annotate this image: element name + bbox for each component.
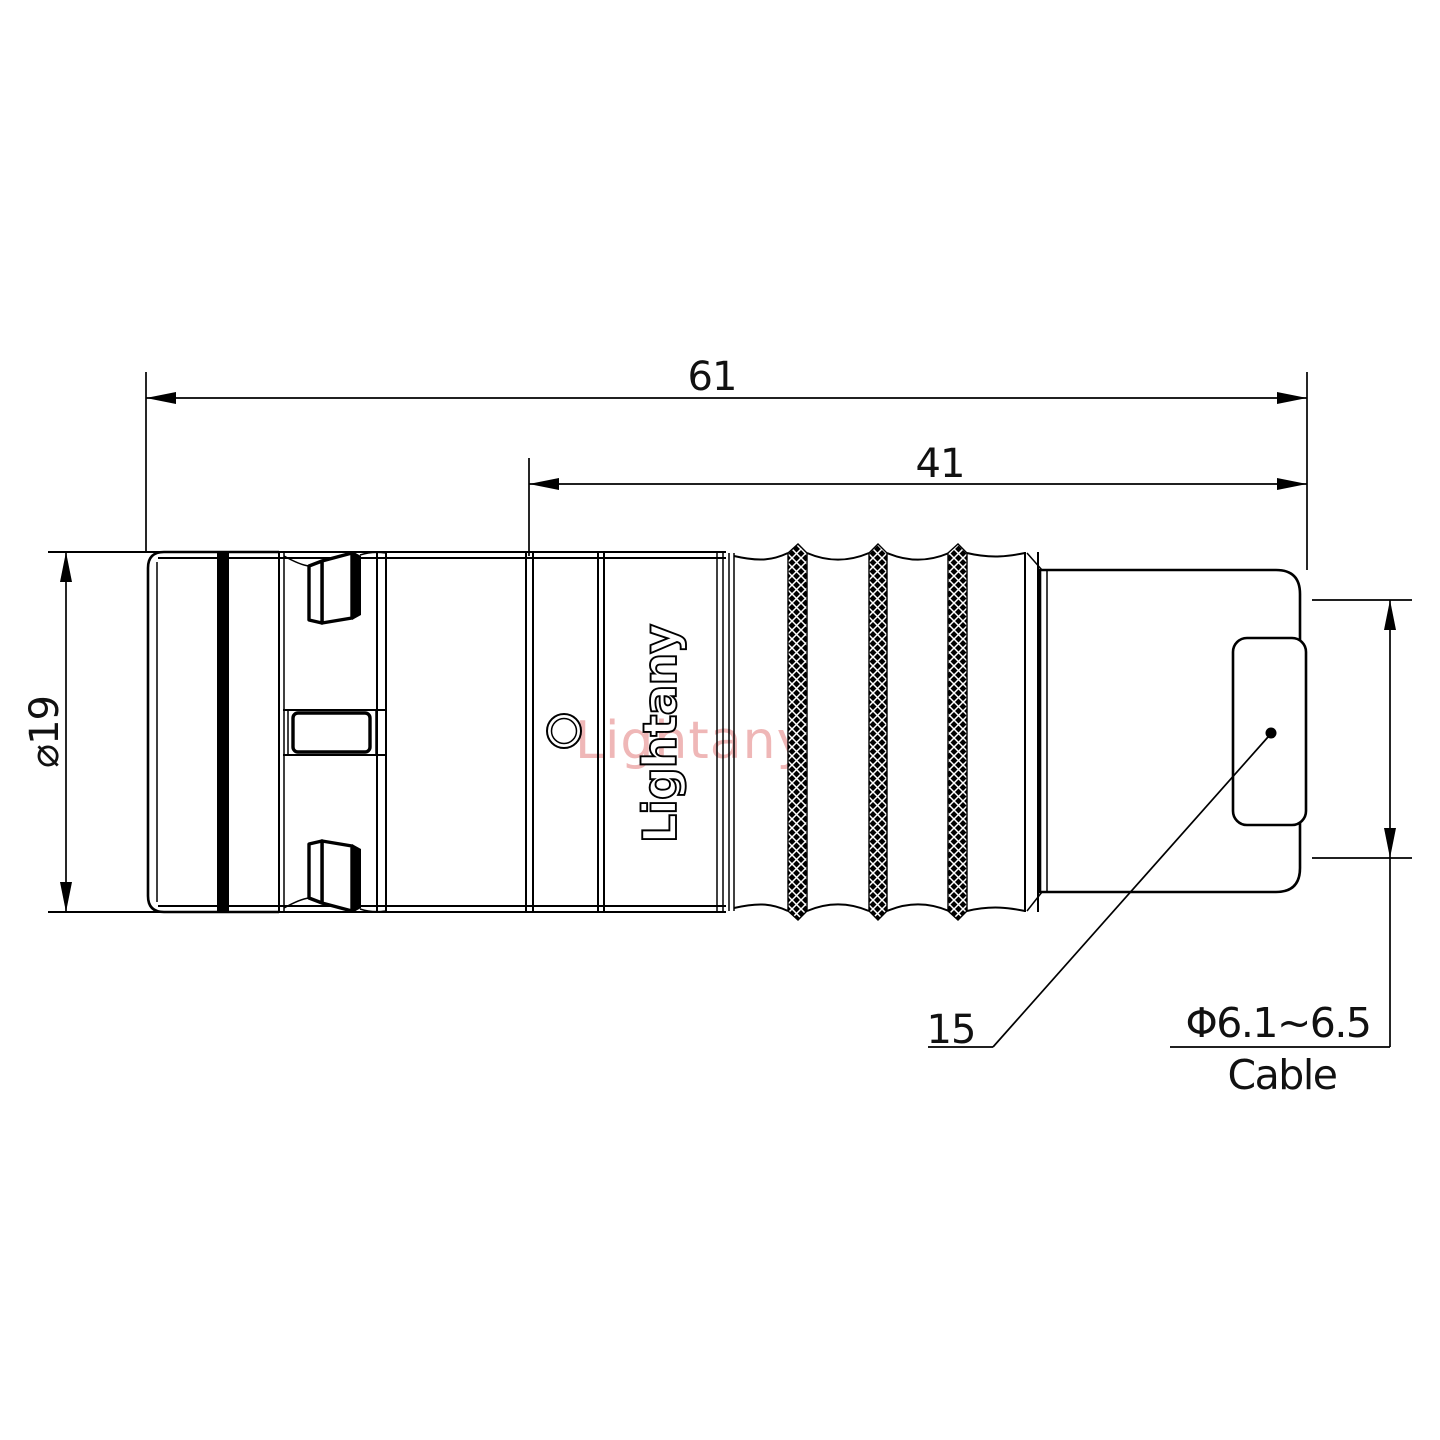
grip-bottom-edge bbox=[887, 904, 949, 911]
arrowhead-right bbox=[1277, 392, 1307, 404]
dim-overall-length-label: 61 bbox=[688, 354, 737, 400]
cable-word-label: Cable bbox=[1228, 1051, 1337, 1099]
dim-rear-length: 41 bbox=[529, 441, 1307, 556]
slot-window bbox=[293, 713, 370, 752]
arrowhead-left bbox=[146, 392, 176, 404]
knurl-band bbox=[869, 544, 887, 920]
latch-clip-top bbox=[322, 553, 352, 623]
dim-rear-length-label: 41 bbox=[916, 441, 965, 487]
dim-body-diameter-label: ⌀19 bbox=[22, 696, 68, 768]
latch-clip-bottom-edge bbox=[352, 844, 361, 913]
dim-cap-diameter bbox=[1312, 600, 1412, 1047]
connector-body: Lightany bbox=[48, 544, 1306, 920]
watermark: Lightany bbox=[575, 711, 808, 771]
dim-overall-length: 61 bbox=[146, 354, 1307, 570]
brand-engraving: Lightany bbox=[633, 624, 687, 844]
vent-hole-inner bbox=[552, 719, 577, 744]
arrowhead-right bbox=[1277, 478, 1307, 490]
latch-clip-top-edge bbox=[352, 551, 361, 620]
flange-chamfer bbox=[1027, 553, 1042, 570]
connector-technical-drawing: Lightany bbox=[0, 0, 1440, 1440]
knurl-band bbox=[948, 544, 967, 920]
grip-bottom-edge bbox=[734, 904, 788, 911]
grip-bottom-edge bbox=[807, 904, 869, 911]
arrowhead-up bbox=[60, 552, 72, 582]
latch-clip-bottom-panel bbox=[309, 841, 322, 903]
arrowhead-left bbox=[529, 478, 559, 490]
grip-bottom-edge bbox=[967, 908, 1025, 911]
arrowhead-up bbox=[1384, 600, 1396, 630]
grip-top-edge bbox=[734, 553, 788, 560]
dim-body-diameter: ⌀19 bbox=[22, 552, 146, 912]
cable-diameter-label: Φ6.1~6.5 bbox=[1185, 999, 1370, 1047]
grip-top-edge bbox=[887, 553, 949, 560]
grip-top-edge bbox=[967, 553, 1025, 556]
knurl-band bbox=[788, 544, 807, 920]
latch-clip-bottom bbox=[322, 841, 352, 911]
release-sleeve bbox=[148, 552, 279, 912]
grip-top-edge bbox=[807, 553, 869, 560]
arrowhead-down bbox=[60, 882, 72, 912]
flange-chamfer bbox=[1027, 892, 1042, 911]
latch-clip-top-panel bbox=[309, 561, 322, 623]
nut-size-label: 15 bbox=[927, 1007, 976, 1053]
label-cable: Φ6.1~6.5 Cable bbox=[1170, 999, 1390, 1099]
drawing-canvas: Lightany bbox=[0, 0, 1440, 1440]
arrowhead-down bbox=[1384, 828, 1396, 858]
index-stripe bbox=[217, 552, 229, 912]
